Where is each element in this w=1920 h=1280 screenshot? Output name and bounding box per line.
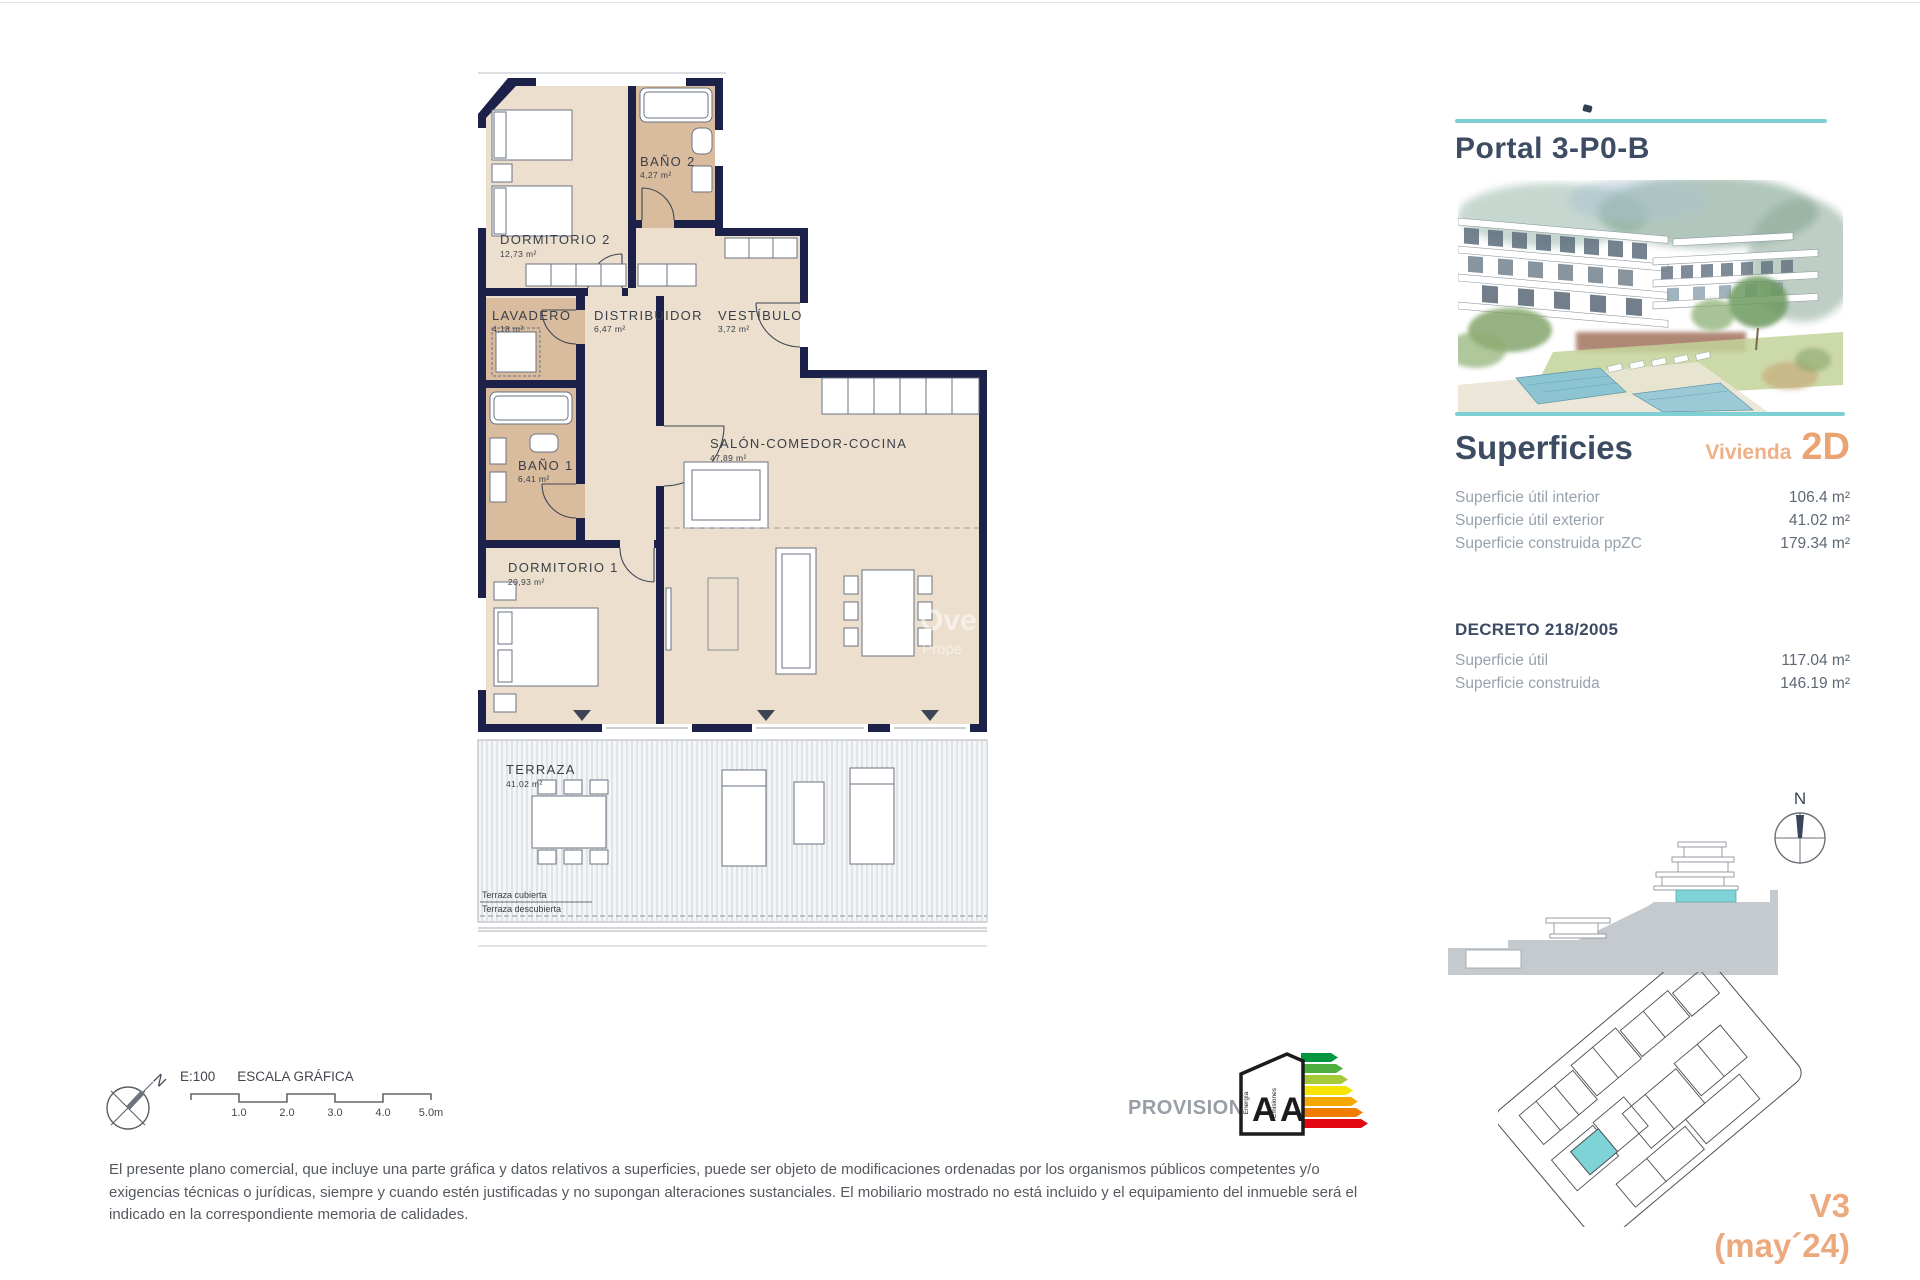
room-area-salon: 47,89 m² — [710, 453, 747, 463]
room-label-terraza: TERRAZA — [506, 762, 576, 777]
table-row: Superficie útil exterior 41.02 m² — [1455, 509, 1850, 532]
teal-rule-superficies — [1455, 412, 1845, 416]
terrace-doors — [602, 724, 970, 732]
decreto-heading: DECRETO 218/2005 — [1455, 620, 1850, 640]
row-label: Superficie útil — [1455, 649, 1548, 672]
room-label-distribuidor: DISTRIBUIDOR — [594, 308, 703, 323]
room-area-lavadero: 4,18 m² — [492, 324, 524, 334]
section-building-small — [1546, 918, 1610, 938]
graphic-scale-bar: 1.0 2.0 3.0 4.0 5.0m — [183, 1086, 453, 1122]
room-area-bano-2: 4,27 m² — [640, 170, 672, 180]
energy-letter-emisiones: A — [1280, 1091, 1305, 1129]
table-row: Superficie útil 117.04 m² — [1455, 649, 1850, 672]
scale-title: ESCALA GRÁFICA — [237, 1069, 353, 1084]
room-label-lavadero: LAVADERO — [492, 308, 571, 323]
section-compass: N — [1775, 790, 1825, 863]
room-area-bano-1: 6,41 m² — [518, 474, 550, 484]
site-highlighted-unit — [1571, 1129, 1618, 1175]
room-area-dormitorio-1: 20,93 m² — [508, 577, 545, 587]
plan-north-label: N — [150, 1071, 170, 1091]
row-label: Superficie construida ppZC — [1455, 532, 1642, 555]
svg-text:Ove: Ove — [920, 604, 977, 637]
row-value: 179.34 m² — [1780, 532, 1850, 555]
energy-certificate: Energía A Emisiones A — [1235, 1048, 1375, 1143]
vivienda-wrap: Vivienda 2D — [1705, 426, 1850, 469]
superficies-header: Superficies Vivienda 2D — [1455, 426, 1850, 469]
compass-needle — [1796, 815, 1804, 838]
room-label-dormitorio-2: DORMITORIO 2 — [500, 232, 611, 247]
teal-rule-top — [1455, 119, 1827, 123]
table-row: Superficie construida 146.19 m² — [1455, 672, 1850, 695]
building-rendering — [1458, 180, 1843, 412]
site-section-diagram: N — [1448, 790, 1853, 980]
logo-mark — [1582, 104, 1592, 113]
version-code: V3 — [1600, 1186, 1850, 1226]
energy-arrows — [1301, 1053, 1368, 1128]
room-label-bano-1: BAÑO 1 — [518, 458, 573, 473]
table-row: Superficie construida ppZC 179.34 m² — [1455, 532, 1850, 555]
terrace-uncovered-label: Terraza descubierta — [482, 904, 561, 914]
scale-tick: 2.0 — [279, 1107, 294, 1119]
room-area-terraza: 41.02 m² — [506, 779, 543, 789]
version-date: (may´24) — [1600, 1226, 1850, 1266]
version-block: V3 (may´24) — [1600, 1186, 1850, 1266]
vivienda-label: Vivienda — [1705, 441, 1791, 465]
energy-axis-emisiones: Emisiones — [1271, 1087, 1278, 1118]
room-label-salon: SALÓN-COMEDOR-COCINA — [710, 436, 907, 451]
svg-text:Prope: Prope — [922, 641, 962, 658]
section-building-main — [1654, 842, 1738, 902]
row-value: 146.19 m² — [1780, 672, 1850, 695]
superficies-table: Superficie útil interior 106.4 m² Superf… — [1455, 486, 1850, 555]
superficies-heading: Superficies — [1455, 429, 1633, 467]
section-north-label: N — [1794, 790, 1806, 808]
scale-tick: 3.0 — [327, 1107, 342, 1119]
row-label: Superficie útil interior — [1455, 486, 1600, 509]
row-value: 117.04 m² — [1781, 649, 1850, 672]
table-row: Superficie útil interior 106.4 m² — [1455, 486, 1850, 509]
floor-plan: Ove Prope Terraza cubierta Terraza descu… — [470, 70, 1010, 960]
plan-compass: N — [98, 1066, 178, 1148]
room-label-bano-2: BAÑO 2 — [640, 154, 695, 169]
scale-tick: 4.0 — [375, 1107, 390, 1119]
scale-ratio-label: E:100 — [180, 1069, 215, 1084]
row-label: Superficie construida — [1455, 672, 1600, 695]
room-area-vestibulo: 3,72 m² — [718, 324, 750, 334]
row-value: 41.02 m² — [1789, 509, 1850, 532]
scale-header: E:100 ESCALA GRÁFICA — [180, 1069, 354, 1084]
vivienda-type: 2D — [1801, 426, 1850, 469]
scale-tick: 1.0 — [231, 1107, 246, 1119]
terrace-covered-label: Terraza cubierta — [482, 890, 547, 900]
room-area-dormitorio-2: 12,73 m² — [500, 249, 537, 259]
unit-title: Portal 3-P0-B — [1455, 132, 1650, 166]
section-highlighted-floor — [1676, 890, 1736, 902]
room-area-distribuidor: 6,47 m² — [594, 324, 626, 334]
room-label-vestibulo: VESTÍBULO — [718, 308, 803, 323]
room-label-dormitorio-1: DORMITORIO 1 — [508, 560, 619, 575]
row-label: Superficie útil exterior — [1455, 509, 1604, 532]
page-top-border — [0, 2, 1920, 3]
compass-needle — [128, 1092, 143, 1108]
page: { "page": { "top_border": "#e3e4e6" }, "… — [0, 0, 1920, 1280]
decreto-section: DECRETO 218/2005 Superficie útil 117.04 … — [1455, 620, 1850, 695]
scale-tick: 5.0m — [419, 1107, 443, 1119]
legal-disclaimer: El presente plano comercial, que incluye… — [109, 1159, 1371, 1227]
row-value: 106.4 m² — [1789, 486, 1850, 509]
energy-axis-energia: Energía — [1243, 1091, 1250, 1114]
